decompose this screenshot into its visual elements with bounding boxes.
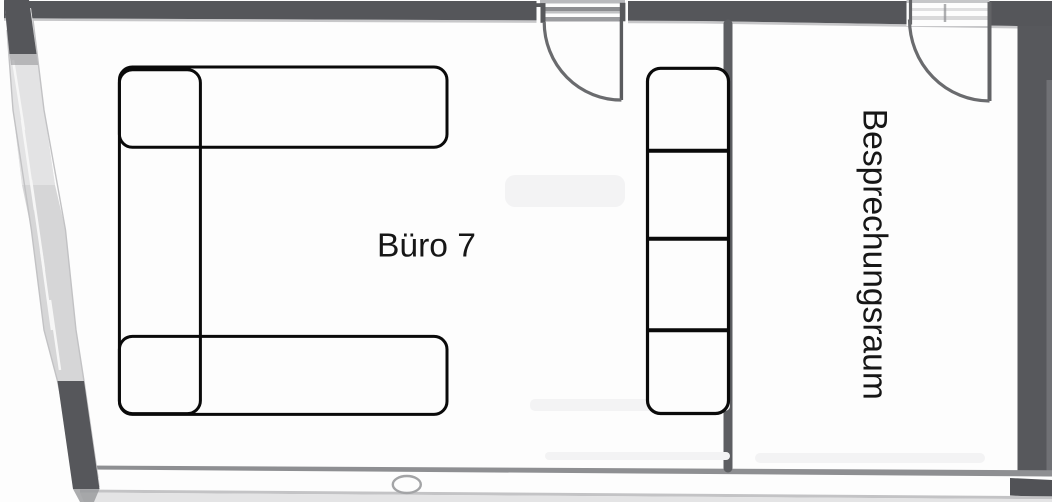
svg-text:Besprechungsraum: Besprechungsraum [856, 109, 894, 400]
svg-text:Büro 7: Büro 7 [377, 227, 476, 264]
